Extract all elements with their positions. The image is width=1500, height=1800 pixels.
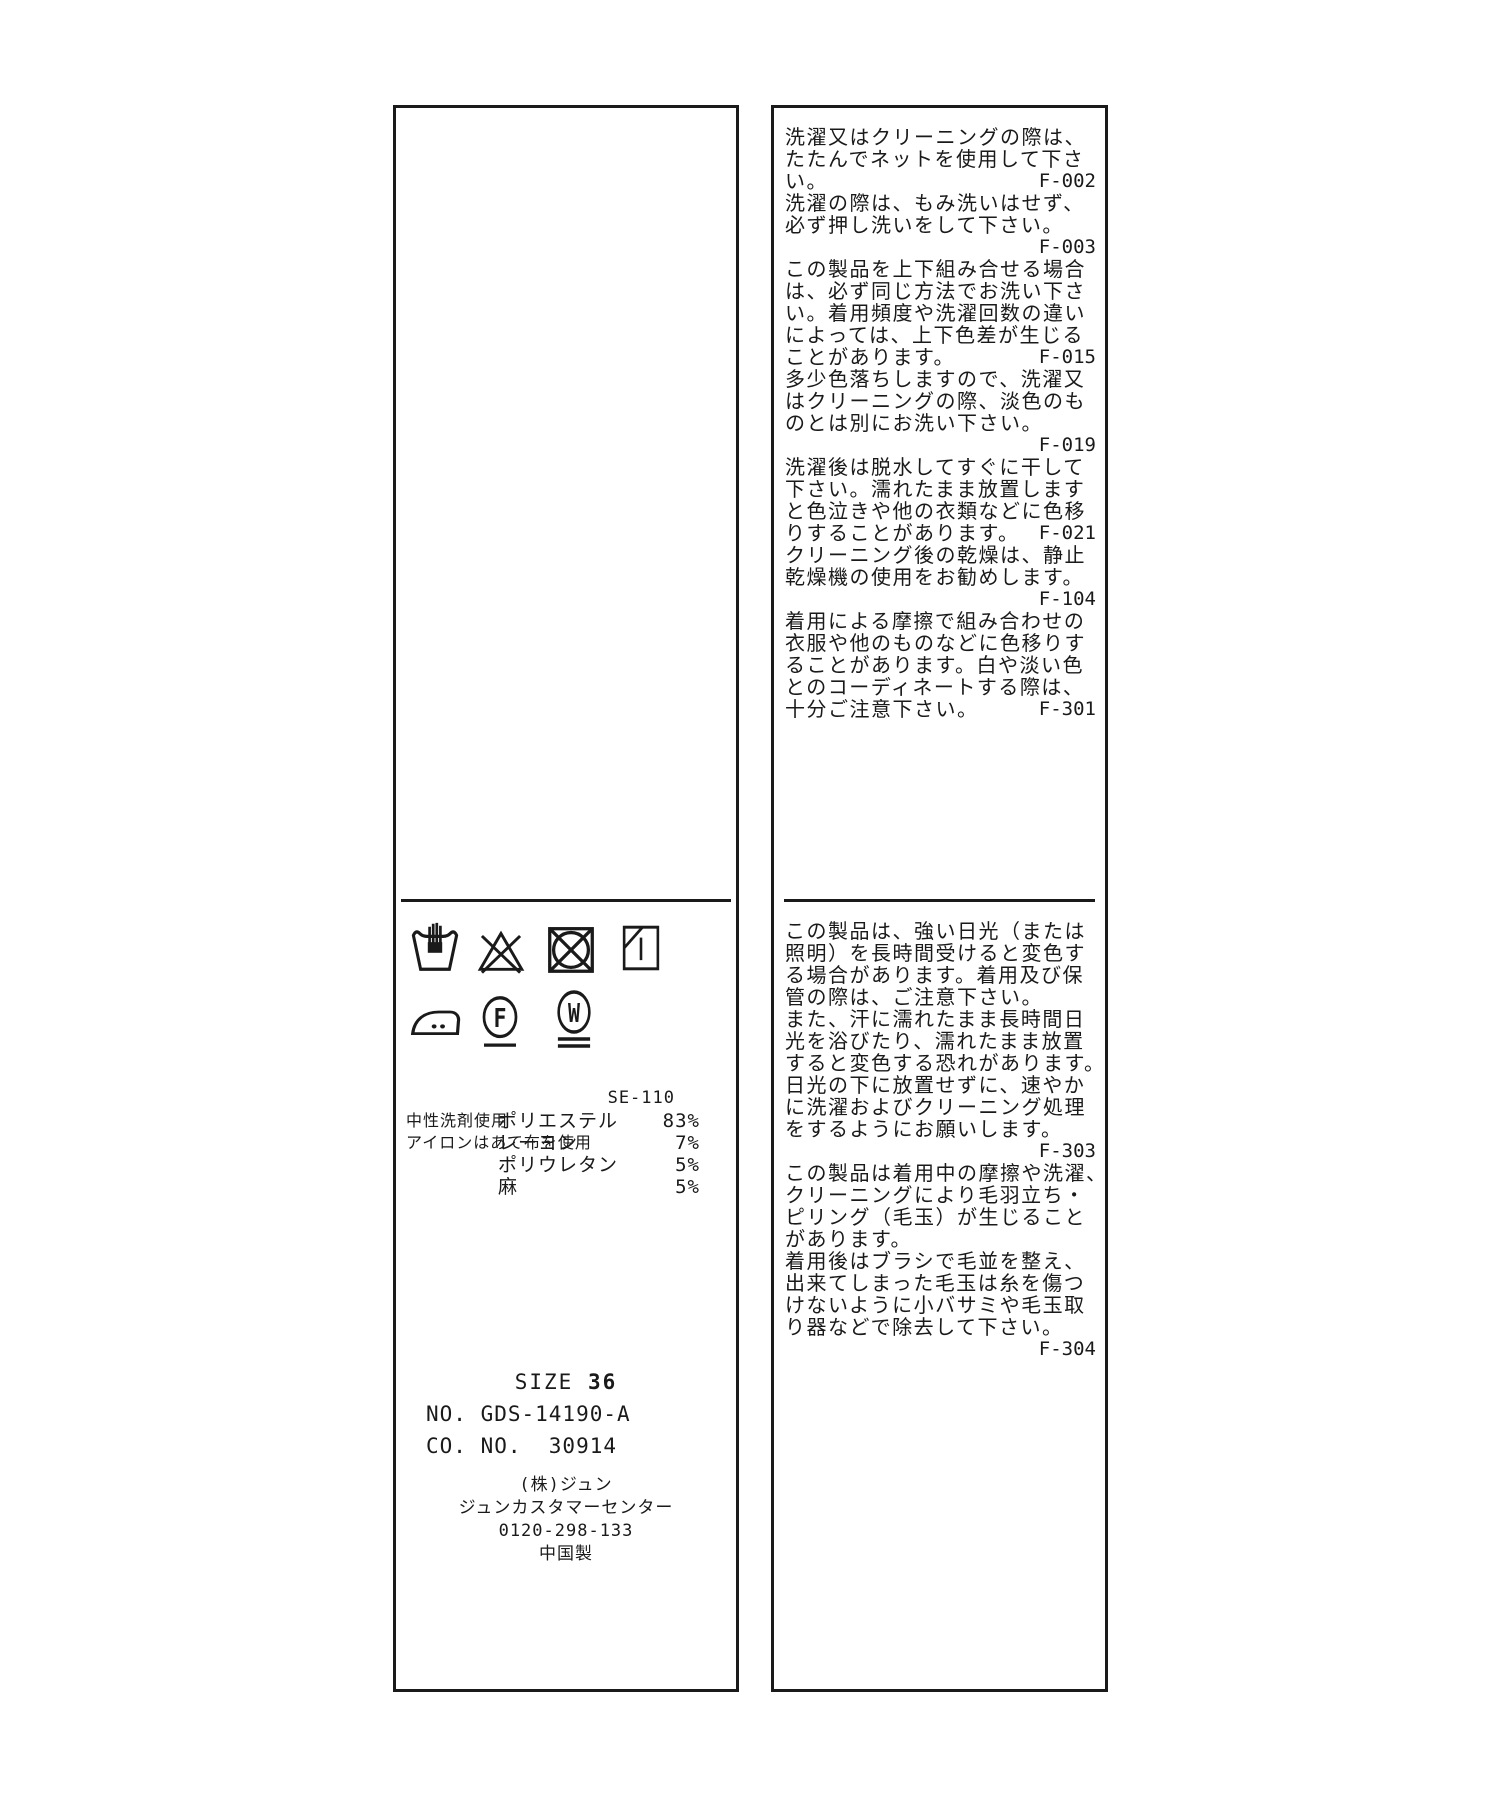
instruction-text: この製品は、強い日光（または: [785, 920, 1086, 942]
care-instruction-line: 下さい。濡れたまま放置します: [785, 478, 1096, 500]
care-instruction-line: ることがあります。白や淡い色: [785, 654, 1096, 676]
care-instruction-line: この製品を上下組み合せる場合: [785, 258, 1096, 280]
care-instructions-bottom: この製品は、強い日光（または 照明）を長時間受けると変色す る場合があります。着…: [785, 920, 1096, 1360]
care-instruction-line: F-304: [785, 1338, 1096, 1360]
care-instruction-line: たたんでネットを使用して下さ: [785, 148, 1096, 170]
instruction-code: F-104: [1039, 588, 1096, 610]
instruction-text: 日光の下に放置せずに、速やか: [785, 1074, 1085, 1096]
instruction-text: クリーニングにより毛羽立ち・: [785, 1184, 1086, 1206]
care-instruction-line: はクリーニングの際、淡色のも: [785, 390, 1096, 412]
care-instruction-line: この製品は着用中の摩擦や洗濯、: [785, 1162, 1096, 1184]
material-name: ポリウレタン: [498, 1154, 618, 1176]
material-percent: 7%: [675, 1132, 700, 1154]
care-instruction-line: F-003: [785, 236, 1096, 258]
size-value: 36: [588, 1370, 617, 1394]
instruction-text: 着用による摩擦で組み合わせの: [785, 610, 1085, 632]
composition-row: レーヨン 7%: [396, 1132, 736, 1154]
instruction-code: F-002: [1039, 170, 1096, 192]
instruction-text: 多少色落ちしますので、洗濯又: [785, 368, 1085, 390]
do-not-tumble-dry-icon: [542, 920, 600, 978]
care-instruction-line: によっては、上下色差が生じる: [785, 324, 1096, 346]
instruction-text: また、汗に濡れたまま長時間日: [785, 1008, 1085, 1030]
care-instruction-line: F-303: [785, 1140, 1096, 1162]
instruction-text: によっては、上下色差が生じる: [785, 324, 1084, 346]
company-line: ジュンカスタマーセンター: [396, 1497, 736, 1520]
care-instruction-line: は、必ず同じ方法でお洗い下さ: [785, 280, 1096, 302]
care-instruction-line: 照明）を長時間受けると変色す: [785, 942, 1096, 964]
instruction-text: 洗濯又はクリーニングの際は、: [785, 126, 1086, 148]
svg-text:F: F: [493, 1003, 506, 1034]
hand-wash-icon: [408, 918, 462, 976]
care-instruction-line: 日光の下に放置せずに、速やか: [785, 1074, 1096, 1096]
care-instruction-line: のとは別にお洗い下さい。: [785, 412, 1096, 434]
care-instruction-line: 十分ご注意下さい。 F-301: [785, 698, 1096, 720]
instruction-text: ピリング（毛玉）が生じること: [785, 1206, 1086, 1228]
material-percent: 5%: [675, 1176, 700, 1198]
line-dry-in-shade-icon: [618, 922, 664, 974]
instruction-code: F-019: [1039, 434, 1096, 456]
care-instruction-line: 管の際は、ご注意下さい。: [785, 986, 1096, 1008]
composition-table: ポリエステル 83% レーヨン 7% ポリウレタン 5% 麻 5%: [396, 1110, 736, 1198]
care-instruction-line: 着用後はブラシで毛並を整え、: [785, 1250, 1096, 1272]
company-line: (株)ジュン: [396, 1474, 736, 1497]
instruction-text: 洗濯の際は、もみ洗いはせず、: [785, 192, 1085, 214]
instruction-code: F-301: [1039, 698, 1096, 720]
instruction-text: この製品を上下組み合せる場合: [785, 258, 1086, 280]
care-instruction-line: とのコーディネートする際は、: [785, 676, 1096, 698]
care-instruction-line: F-019: [785, 434, 1096, 456]
composition-row: ポリウレタン 5%: [396, 1154, 736, 1176]
instruction-text: る場合があります。着用及び保: [785, 964, 1084, 986]
co-number: CO. NO. 30914: [426, 1434, 617, 1458]
care-instruction-line: があります。: [785, 1228, 1096, 1250]
care-instructions-panel: 洗濯又はクリーニングの際は、 たたんでネットを使用して下さ い。 F-002 洗…: [771, 105, 1108, 1692]
care-instructions-top: 洗濯又はクリーニングの際は、 たたんでネットを使用して下さ い。 F-002 洗…: [785, 126, 1096, 720]
instruction-text: とのコーディネートする際は、: [785, 676, 1084, 698]
svg-text:W: W: [568, 1000, 580, 1029]
instruction-text: ことがあります。: [785, 346, 955, 368]
company-block: (株)ジュンジュンカスタマーセンター0120-298-133中国製: [396, 1474, 736, 1566]
care-instruction-line: 必ず押し洗いをして下さい。: [785, 214, 1096, 236]
composition-panel: F W 中性洗剤使用アイロンはあて布を使用 SE-110 ポリエステル 83% …: [393, 105, 739, 1692]
care-instruction-line: ピリング（毛玉）が生じること: [785, 1206, 1096, 1228]
instruction-text: クリーニング後の乾燥は、静止: [785, 544, 1086, 566]
size-line: SIZE 36: [396, 1370, 736, 1394]
material-name: レーヨン: [498, 1132, 578, 1154]
care-instruction-line: F-104: [785, 588, 1096, 610]
instruction-text: と色泣きや他の衣類などに色移: [785, 500, 1086, 522]
instruction-text: い。: [785, 170, 828, 192]
instruction-text: 光を浴びたり、濡れたまま放置: [785, 1030, 1085, 1052]
item-number: NO. GDS-14190-A: [426, 1402, 631, 1426]
care-instruction-line: 乾燥機の使用をお勧めします。: [785, 566, 1096, 588]
instruction-text: はクリーニングの際、淡色のも: [785, 390, 1086, 412]
instruction-text: をするようにお願いします。: [785, 1118, 1063, 1140]
material-percent: 83%: [663, 1110, 700, 1132]
instruction-text: い。着用頻度や洗濯回数の違い: [785, 302, 1086, 324]
material-name: 麻: [498, 1176, 518, 1198]
instruction-text: ることがあります。白や淡い色: [785, 654, 1084, 676]
do-not-bleach-icon: [475, 926, 527, 976]
care-instruction-line: に洗濯およびクリーニング処理: [785, 1096, 1096, 1118]
instruction-text: すると変色する恐れがあります。: [785, 1052, 1106, 1074]
instruction-text: 必ず押し洗いをして下さい。: [785, 214, 1064, 236]
iron-medium-icon: [408, 996, 464, 1044]
instruction-text: 着用後はブラシで毛並を整え、: [785, 1250, 1086, 1272]
instruction-text: 衣服や他のものなどに色移りす: [785, 632, 1086, 654]
instruction-text: のとは別にお洗い下さい。: [785, 412, 1043, 434]
dry-clean-F-icon: F: [476, 992, 524, 1050]
instruction-text: 照明）を長時間受けると変色す: [785, 942, 1086, 964]
care-instruction-line: 洗濯後は脱水してすぐに干して: [785, 456, 1096, 478]
material-percent: 5%: [675, 1154, 700, 1176]
instruction-text: 十分ご注意下さい。: [785, 698, 979, 720]
composition-row: 麻 5%: [396, 1176, 736, 1198]
instruction-text: この製品は着用中の摩擦や洗濯、: [785, 1162, 1108, 1184]
instruction-text: 出来てしまった毛玉は糸を傷つ: [785, 1272, 1085, 1294]
instruction-text: は、必ず同じ方法でお洗い下さ: [785, 280, 1086, 302]
instruction-text: 乾燥機の使用をお勧めします。: [785, 566, 1084, 588]
instruction-text: 下さい。濡れたまま放置します: [785, 478, 1085, 500]
right-panel-divider: [784, 899, 1095, 902]
care-instruction-line: けないように小バサミや毛玉取: [785, 1294, 1096, 1316]
instruction-text: があります。: [785, 1228, 912, 1250]
care-instruction-line: ことがあります。 F-015: [785, 346, 1096, 368]
care-instruction-line: りすることがあります。 F-021: [785, 522, 1096, 544]
care-instruction-line: 洗濯の際は、もみ洗いはせず、: [785, 192, 1096, 214]
instruction-code: F-015: [1039, 346, 1096, 368]
company-line: 中国製: [396, 1543, 736, 1566]
instruction-text: けないように小バサミや毛玉取: [785, 1294, 1086, 1316]
care-instruction-line: と色泣きや他の衣類などに色移: [785, 500, 1096, 522]
care-instruction-line: い。 F-002: [785, 170, 1096, 192]
left-panel-divider: [401, 899, 731, 902]
instruction-text: たたんでネットを使用して下さ: [785, 148, 1084, 170]
wet-clean-W-icon: W: [551, 988, 597, 1048]
size-label: SIZE: [515, 1370, 574, 1394]
composition-row: ポリエステル 83%: [396, 1110, 736, 1132]
care-instruction-line: クリーニングにより毛羽立ち・: [785, 1184, 1096, 1206]
instruction-text: 管の際は、ご注意下さい。: [785, 986, 1043, 1008]
ref-code: SE-110: [608, 1088, 675, 1108]
care-instruction-line: クリーニング後の乾燥は、静止: [785, 544, 1096, 566]
instruction-code: F-304: [1039, 1338, 1096, 1360]
care-instruction-line: 衣服や他のものなどに色移りす: [785, 632, 1096, 654]
care-instruction-line: をするようにお願いします。: [785, 1118, 1096, 1140]
instruction-code: F-003: [1039, 236, 1096, 258]
instruction-code: F-021: [1039, 522, 1096, 544]
instruction-text: 洗濯後は脱水してすぐに干して: [785, 456, 1085, 478]
care-instruction-line: り器などで除去して下さい。: [785, 1316, 1096, 1338]
instruction-text: りすることがあります。: [785, 522, 1020, 544]
instruction-text: に洗濯およびクリーニング処理: [785, 1096, 1086, 1118]
care-instruction-line: また、汗に濡れたまま長時間日: [785, 1008, 1096, 1030]
care-instruction-line: 光を浴びたり、濡れたまま放置: [785, 1030, 1096, 1052]
care-instruction-line: 多少色落ちしますので、洗濯又: [785, 368, 1096, 390]
care-label-sheet: { "page": {"background": "#ffffff", "ink…: [0, 0, 1500, 1800]
care-instruction-line: 着用による摩擦で組み合わせの: [785, 610, 1096, 632]
instruction-code: F-303: [1039, 1140, 1096, 1162]
care-instruction-line: 出来てしまった毛玉は糸を傷つ: [785, 1272, 1096, 1294]
care-instruction-line: 洗濯又はクリーニングの際は、: [785, 126, 1096, 148]
instruction-text: り器などで除去して下さい。: [785, 1316, 1064, 1338]
company-line: 0120-298-133: [396, 1520, 736, 1543]
care-instruction-line: い。着用頻度や洗濯回数の違い: [785, 302, 1096, 324]
care-instruction-line: この製品は、強い日光（または: [785, 920, 1096, 942]
material-name: ポリエステル: [498, 1110, 618, 1132]
care-instruction-line: る場合があります。着用及び保: [785, 964, 1096, 986]
care-instruction-line: すると変色する恐れがあります。: [785, 1052, 1096, 1074]
